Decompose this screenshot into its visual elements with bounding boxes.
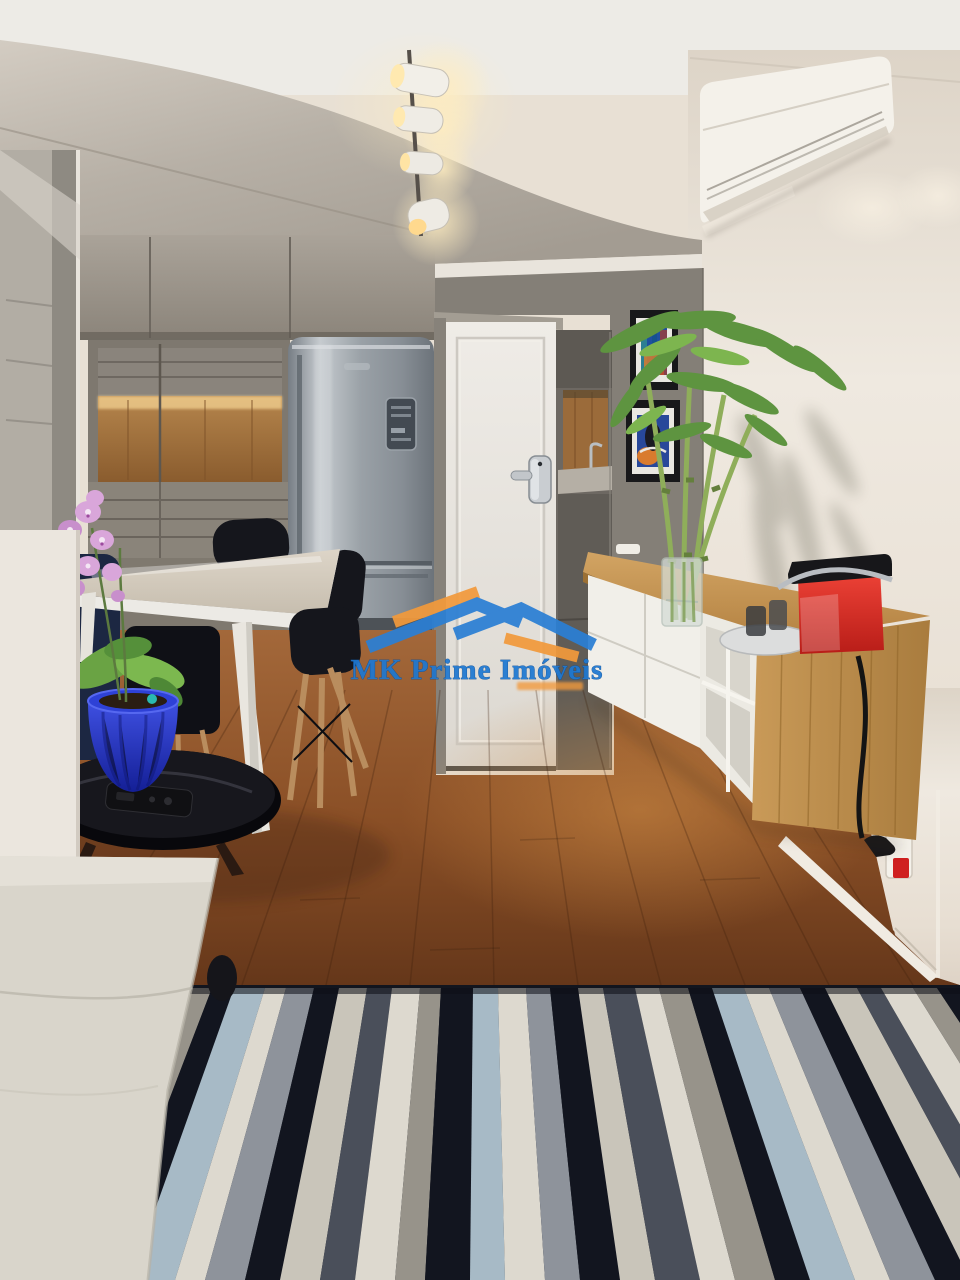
wall-column-left — [0, 530, 80, 862]
watermark-text: MK Prime Imóveis — [351, 654, 604, 686]
fridge-brand-badge — [344, 363, 370, 370]
sofa-foot — [207, 955, 237, 1001]
red-tag — [893, 858, 909, 878]
spotlight-3 — [399, 151, 443, 176]
glass-vase — [662, 558, 702, 626]
glass-cup — [769, 600, 787, 630]
small-object — [616, 544, 640, 554]
glass-cup — [746, 606, 766, 636]
counter — [558, 466, 612, 494]
fridge-display — [386, 398, 416, 450]
mirror-panel — [0, 150, 80, 532]
cabinet-niche — [98, 344, 282, 482]
apartment-photo: MK Prime Imóveis — [0, 0, 960, 1280]
watermark-tagline — [517, 682, 583, 690]
